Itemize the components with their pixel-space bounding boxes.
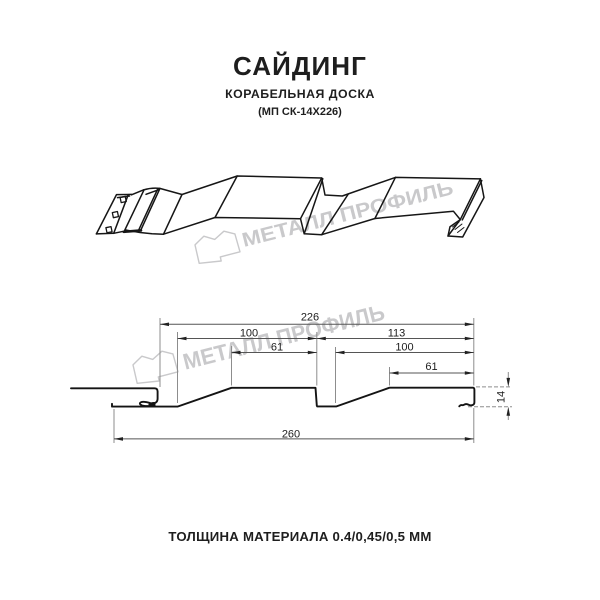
svg-text:14: 14 <box>496 391 508 403</box>
svg-text:226: 226 <box>301 312 319 324</box>
svg-text:100: 100 <box>395 342 413 354</box>
svg-text:100: 100 <box>240 328 258 340</box>
svg-text:МЕТАЛЛ ПРОФИЛЬ: МЕТАЛЛ ПРОФИЛЬ <box>180 300 387 375</box>
svg-text:113: 113 <box>388 328 406 340</box>
svg-text:61: 61 <box>271 342 283 354</box>
svg-text:260: 260 <box>282 428 300 440</box>
svg-text:61: 61 <box>425 361 437 373</box>
